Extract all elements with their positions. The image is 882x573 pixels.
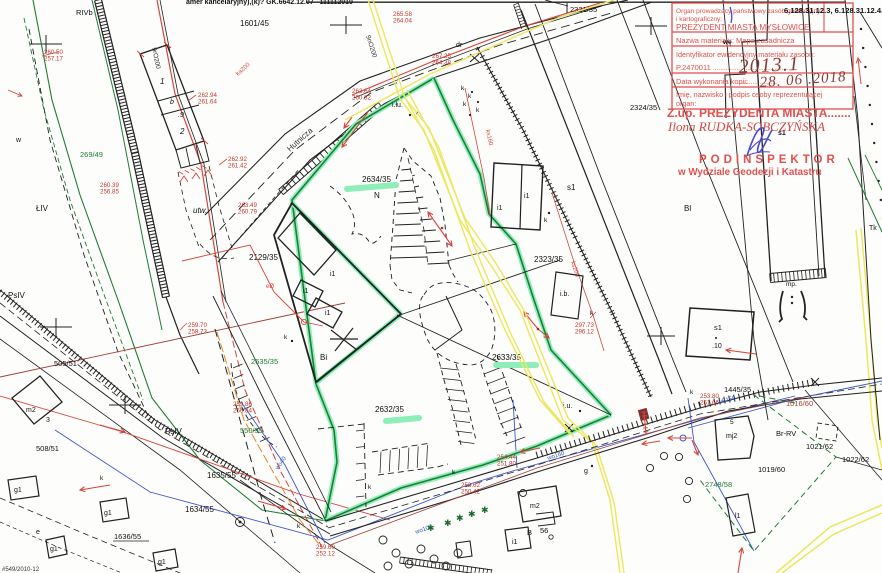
svg-text:s1: s1: [714, 323, 722, 332]
svg-text:505/51: 505/51: [54, 359, 77, 368]
svg-text:1021/62: 1021/62: [806, 442, 833, 451]
svg-text:e: e: [36, 529, 40, 536]
svg-text:2323/35: 2323/35: [534, 255, 563, 264]
svg-text:g1: g1: [50, 546, 58, 553]
svg-text:l1: l1: [735, 513, 741, 520]
svg-text:✱: ✱: [456, 513, 464, 523]
svg-text:✱: ✱: [427, 523, 435, 533]
svg-text:1601/45: 1601/45: [240, 19, 269, 28]
svg-text:i1: i1: [524, 193, 530, 200]
svg-text:2324/35: 2324/35: [630, 103, 657, 112]
svg-text:w: w: [15, 137, 22, 144]
svg-text:Z.up. PREZYDENTA MIASTA.......: Z.up. PREZYDENTA MIASTA.......: [667, 106, 851, 120]
svg-text:amer kancelaryjny),(k)? GK.664: amer kancelaryjny),(k)? GK.6642.12.07 11…: [186, 0, 353, 6]
svg-text:2634/35: 2634/35: [362, 175, 391, 184]
svg-text:#549/2010-12: #549/2010-12: [2, 567, 40, 573]
svg-text:Bl: Bl: [684, 204, 691, 213]
svg-text:256.85: 256.85: [100, 189, 119, 196]
svg-text:i.łu.: i.łu.: [392, 102, 403, 109]
svg-text:b: b: [170, 99, 174, 106]
svg-text:N: N: [374, 191, 380, 200]
svg-text:i1: i1: [497, 205, 503, 212]
svg-text:RIVb: RIVb: [76, 8, 93, 17]
svg-text:i1: i1: [325, 310, 331, 317]
svg-text:P.2470011: P.2470011: [676, 63, 711, 72]
svg-text:1636/55: 1636/55: [114, 532, 141, 541]
svg-text:260.82: 260.82: [352, 95, 371, 102]
svg-text:5: 5: [730, 419, 734, 426]
svg-text:1635/55: 1635/55: [207, 471, 236, 480]
svg-text:eØ: eØ: [266, 284, 274, 290]
svg-text:m2: m2: [26, 407, 36, 414]
svg-text:dr: dr: [456, 42, 463, 49]
svg-text:Bi: Bi: [320, 353, 327, 362]
svg-text:260.79: 260.79: [238, 209, 257, 216]
svg-text:257.17: 257.17: [44, 56, 63, 63]
svg-text:s1: s1: [567, 183, 576, 192]
svg-text:1634/55: 1634/55: [185, 505, 214, 514]
svg-text:2748/58: 2748/58: [705, 480, 732, 489]
svg-text:250.42: 250.42: [461, 489, 480, 496]
svg-text:i1: i1: [303, 288, 309, 295]
svg-text:Nazwa materiału: Mapa zasadnic: Nazwa materiału: Mapa zasadnicza: [676, 36, 795, 45]
svg-text:✱: ✱: [468, 509, 476, 519]
svg-text:1: 1: [160, 77, 164, 86]
svg-text:mj2: mj2: [726, 433, 737, 440]
svg-text:2129/35: 2129/35: [249, 253, 278, 262]
svg-text:.9: .9: [178, 112, 184, 119]
svg-text:56: 56: [540, 526, 548, 535]
svg-text:2: 2: [179, 127, 185, 136]
svg-text:i kartograficzny:: i kartograficzny:: [676, 16, 722, 23]
svg-text:g1: g1: [104, 510, 112, 517]
svg-text:269/49: 269/49: [80, 150, 103, 159]
svg-text:PsIV: PsIV: [8, 291, 26, 300]
svg-text:252.12: 252.12: [316, 551, 335, 558]
svg-text:w Wydziale Geodezji i Katastru: w Wydziale Geodezji i Katastru: [677, 167, 822, 178]
svg-text:✱: ✱: [444, 518, 452, 528]
svg-text:.10: .10: [712, 343, 722, 350]
svg-text:i1: i1: [330, 271, 336, 278]
svg-text:i1: i1: [512, 539, 518, 546]
svg-text:PsIV: PsIV: [165, 427, 183, 436]
svg-text:wę: wę: [722, 39, 732, 46]
svg-text:utw.: utw.: [193, 206, 207, 215]
svg-text:2632/35: 2632/35: [375, 405, 404, 414]
svg-text:258.73: 258.73: [188, 329, 207, 336]
svg-text:Tk: Tk: [869, 225, 877, 232]
svg-text:Br-RV: Br-RV: [776, 429, 796, 438]
svg-text:508/51: 508/51: [36, 444, 59, 453]
svg-text:i.b.: i.b.: [560, 291, 569, 298]
svg-text:g1: g1: [14, 487, 22, 494]
svg-text:PREZYDENT MIASTA MYSŁOWICE: PREZYDENT MIASTA MYSŁOWICE: [676, 23, 810, 32]
svg-text:261.64: 261.64: [198, 99, 217, 106]
svg-text:251.80: 251.80: [497, 461, 516, 468]
svg-text:6.128.31.12.3, 6.128.31.12.4,: 6.128.31.12.3, 6.128.31.12.4,: [784, 6, 882, 15]
svg-text:✱: ✱: [481, 505, 489, 515]
svg-text:m2: m2: [530, 503, 540, 510]
svg-text:ŁIV: ŁIV: [36, 204, 49, 213]
svg-text:550/55: 550/55: [240, 426, 263, 435]
svg-text:1445/35: 1445/35: [724, 385, 751, 394]
svg-text:g1: g1: [158, 559, 166, 566]
svg-text:264.04: 264.04: [393, 18, 412, 25]
svg-text:296.12: 296.12: [575, 329, 594, 336]
svg-text:3: 3: [46, 417, 50, 424]
svg-text:g: g: [584, 468, 588, 475]
svg-text:PODINSPEKTOR: PODINSPEKTOR: [699, 154, 839, 166]
svg-text:1016/60: 1016/60: [786, 399, 813, 408]
svg-text:mp.: mp.: [786, 281, 797, 288]
svg-text:Ilona RUDKA-SOBCZYŃSKA: Ilona RUDKA-SOBCZYŃSKA: [667, 119, 825, 134]
svg-text:261.42: 261.42: [228, 163, 247, 170]
svg-text:Imię, nazwisko i podpis osoby: Imię, nazwisko i podpis osoby reprezentu…: [676, 90, 823, 99]
svg-text:2635/35: 2635/35: [251, 357, 278, 366]
svg-text:1019/60: 1019/60: [758, 465, 785, 474]
